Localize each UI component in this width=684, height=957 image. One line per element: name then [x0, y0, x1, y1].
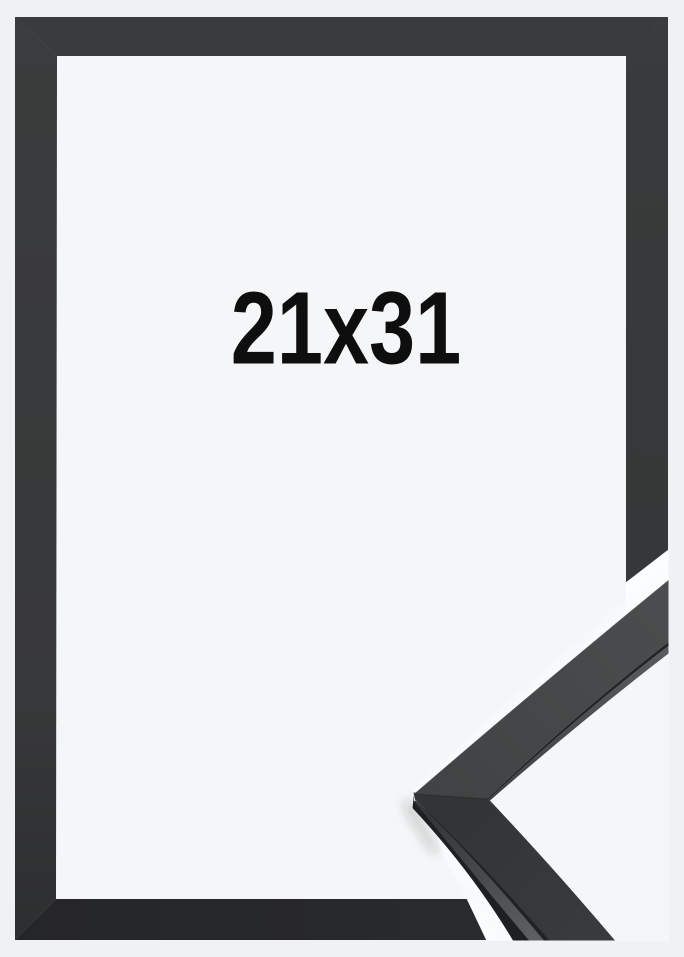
svg-text:21x31: 21x31 — [231, 270, 462, 386]
